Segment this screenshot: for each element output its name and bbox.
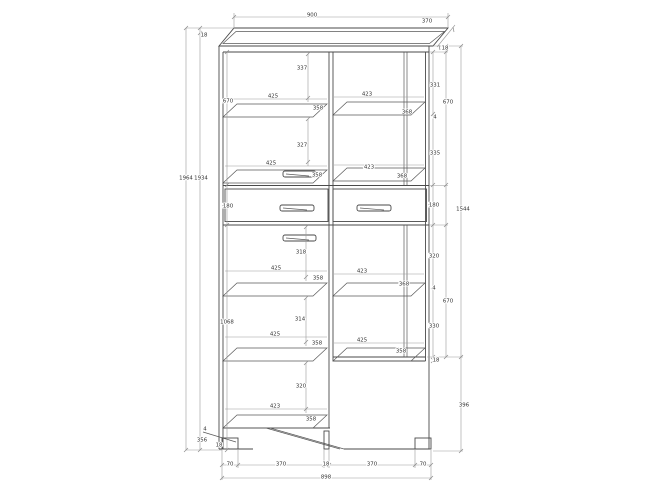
dim-label-left-upper-section: 670 xyxy=(223,99,234,105)
dim-label-right-top-thickness: 18 xyxy=(442,46,449,52)
dim-label-foot-right-width: 70 xyxy=(420,462,427,468)
dim-label-upper-left-gap-1: 337 xyxy=(297,66,307,72)
drawer-left-handle xyxy=(280,205,314,211)
dim-label-foot-left-width: 70 xyxy=(227,462,234,468)
dim-label-lower-left-gap-1: 318 xyxy=(296,250,307,256)
left-foot xyxy=(222,438,238,449)
dim-label-lower-left-depth-2: 358 xyxy=(312,341,323,347)
dim-label-upper-left-width-2: 425 xyxy=(266,161,276,167)
dim-label-bottom-left-gap: 4 xyxy=(203,427,207,433)
dim-label-upper-left-depth-1: 358 xyxy=(313,106,324,112)
dim-label-right-upper-shelf-thickness: 4 xyxy=(433,115,437,121)
dim-label-upper-right-depth-2: 368 xyxy=(397,174,408,180)
dim-label-right-bottom-thickness: 18 xyxy=(433,358,440,364)
dim-label-upper-left-depth-2: 358 xyxy=(312,173,323,179)
drawer-fronts xyxy=(225,189,427,222)
lower-door-handle xyxy=(283,235,316,241)
dim-label-upper-right-depth-1: 368 xyxy=(402,110,413,116)
dim-label-top-depth: 370 xyxy=(422,19,433,25)
dim-label-lower-right-width-1: 423 xyxy=(357,269,367,275)
dim-label-lower-left-gap-3: 320 xyxy=(296,384,307,390)
dim-label-right-lower-shelf-thickness: 4 xyxy=(432,286,436,292)
base-and-feet xyxy=(203,428,431,449)
dimension-ticks xyxy=(184,15,463,480)
dim-label-lower-left-depth-3: 358 xyxy=(306,417,317,423)
cabinet-drawing: 9003701819641934670180106843561818331433… xyxy=(0,0,648,486)
dim-label-upper-right-width-1: 423 xyxy=(362,92,372,98)
dim-label-right-total-upper: 1544 xyxy=(456,207,470,213)
dim-label-center-support-width: 18 xyxy=(323,462,330,468)
dim-label-right-base-height: 396 xyxy=(459,403,470,409)
dim-label-lower-right-depth-1: 368 xyxy=(399,282,410,288)
dim-label-right-upper-section: 670 xyxy=(443,100,454,106)
dim-label-right-lower-shelf-gap-1: 320 xyxy=(429,254,440,260)
dim-label-top-panel-thickness: 18 xyxy=(201,33,208,39)
dim-label-top-width: 900 xyxy=(307,13,318,19)
dim-label-left-lower-section: 1068 xyxy=(220,320,234,326)
dim-label-bottom-left-depth: 356 xyxy=(197,438,208,444)
dim-label-upper-left-width-1: 425 xyxy=(268,94,278,100)
drawer-right-handle xyxy=(357,205,391,211)
dimension-lines xyxy=(186,13,463,480)
dim-label-height-outer: 1964 xyxy=(179,176,193,182)
dim-label-bottom-left-thickness: 18 xyxy=(216,443,223,449)
dim-label-lower-left-gap-2: 314 xyxy=(295,317,306,323)
dim-label-height-inner: 1934 xyxy=(194,176,208,182)
dim-label-lower-left-width-3: 423 xyxy=(270,404,280,410)
dim-label-foot-gap-left: 370 xyxy=(276,462,287,468)
dim-label-right-upper-shelf-gap-1: 331 xyxy=(430,83,440,89)
dim-label-lower-left-width-1: 425 xyxy=(271,266,281,272)
dim-label-right-lower-shelf-gap-2: 330 xyxy=(429,324,440,330)
dim-label-foot-gap-right: 370 xyxy=(367,462,378,468)
dim-label-right-drawer-height: 180 xyxy=(429,203,440,209)
dim-label-upper-right-width-2: 423 xyxy=(364,165,374,171)
top-panel-perspective xyxy=(219,28,448,46)
dim-label-left-drawer-height: 180 xyxy=(223,204,234,210)
dim-label-lower-right-depth-2: 358 xyxy=(396,349,407,355)
dim-label-upper-left-gap-2: 327 xyxy=(297,143,307,149)
dim-label-right-upper-shelf-gap-2: 335 xyxy=(430,151,440,157)
handles xyxy=(280,171,391,241)
dim-label-lower-right-width-2: 425 xyxy=(357,338,367,344)
dim-label-bottom-total-width: 898 xyxy=(321,475,332,481)
technical-drawing-page: 9003701819641934670180106843561818331433… xyxy=(0,0,648,486)
shelves xyxy=(223,102,425,428)
dim-label-right-lower-section: 670 xyxy=(443,299,454,305)
dim-label-lower-left-width-2: 425 xyxy=(270,332,280,338)
dim-label-lower-left-depth-1: 358 xyxy=(313,276,324,282)
